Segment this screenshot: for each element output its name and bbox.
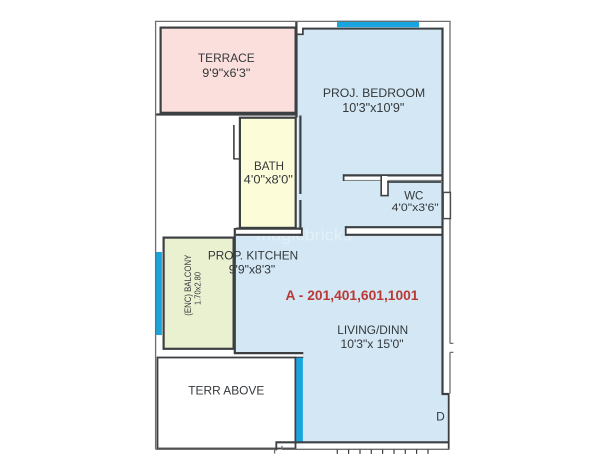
svg-text:4'0"x8'0": 4'0"x8'0" [244, 173, 293, 187]
svg-text:TERRACE: TERRACE [198, 51, 255, 65]
svg-text:WC: WC [404, 191, 423, 203]
svg-text:PROP. KITCHEN: PROP. KITCHEN [208, 249, 298, 263]
svg-text:(ENC) BALCONY: (ENC) BALCONY [183, 255, 193, 316]
svg-text:D: D [436, 410, 445, 424]
svg-text:10'3"x 15'0": 10'3"x 15'0" [341, 337, 404, 351]
svg-text:PROJ. BEDROOM: PROJ. BEDROOM [323, 86, 425, 100]
svg-text:1.70x2.80: 1.70x2.80 [193, 271, 202, 305]
svg-text:9'9"x6'3": 9'9"x6'3" [202, 66, 250, 80]
svg-text:9'9"x8'3": 9'9"x8'3" [229, 263, 276, 277]
svg-text:10'3"x10'9": 10'3"x10'9" [342, 101, 404, 115]
svg-text:LIVING/DINN: LIVING/DINN [337, 323, 408, 337]
svg-text:A - 201,401,601,1001: A - 201,401,601,1001 [286, 288, 419, 303]
svg-text:BATH: BATH [254, 160, 284, 173]
svg-text:4'0"x3'6": 4'0"x3'6" [392, 202, 439, 214]
svg-text:TERR ABOVE: TERR ABOVE [188, 384, 264, 398]
